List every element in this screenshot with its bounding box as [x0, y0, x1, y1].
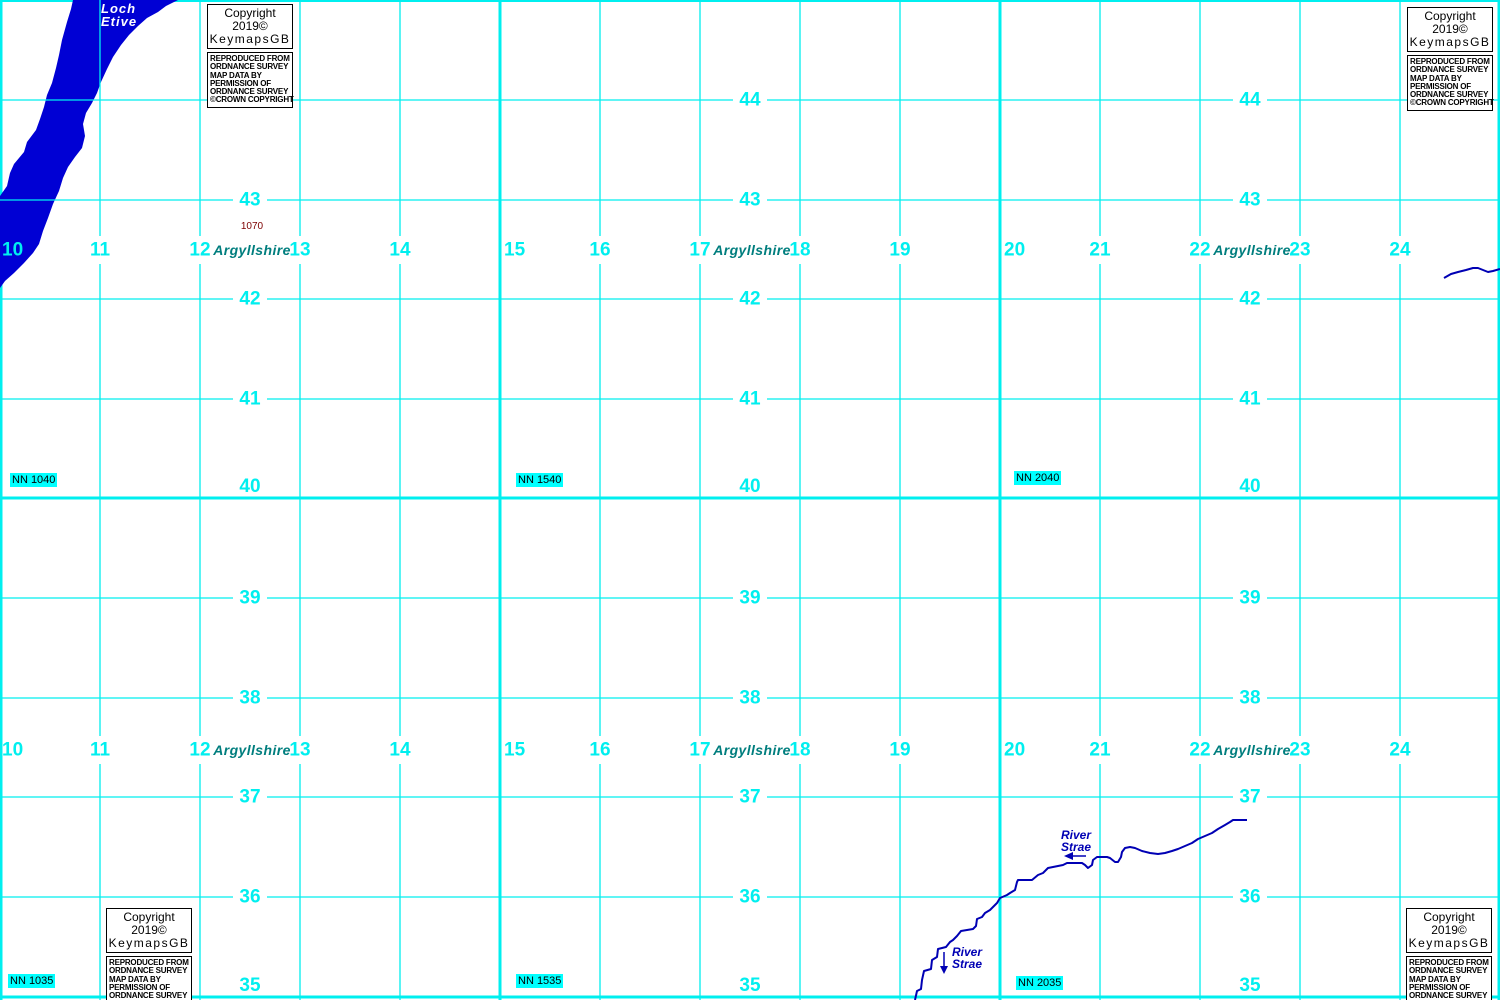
- grid-column-label-14: 14: [389, 741, 410, 760]
- nn-grid-ref: NN 1040: [10, 473, 57, 487]
- grid-row-label-36: 36: [739, 888, 760, 907]
- grid-row-label-40: 40: [739, 477, 760, 496]
- copyright-box: Copyright 2019© KeymapsGB REPRODUCED FRO…: [106, 908, 192, 1000]
- copyright-os-line: ©CROWN COPYRIGHT: [210, 96, 291, 104]
- river-name-label: RiverStrae: [952, 946, 982, 970]
- grid-column-label-13: 13: [289, 741, 310, 760]
- grid-column-label-10: 10: [2, 741, 23, 760]
- grid-column-label-17: 17: [689, 241, 710, 260]
- grid-row-label-44: 44: [739, 91, 760, 110]
- river-name-label: RiverStrae: [1061, 829, 1091, 853]
- grid-column-label-15: 15: [504, 241, 525, 260]
- grid-column-label-21: 21: [1089, 741, 1110, 760]
- grid-row-label-39: 39: [239, 589, 260, 608]
- grid-row-label-40: 40: [1239, 477, 1260, 496]
- grid-row-label-37: 37: [239, 788, 260, 807]
- river-name-line: Strae: [952, 958, 982, 970]
- grid-row-label-37: 37: [739, 788, 760, 807]
- nn-grid-ref: NN 2035: [1016, 976, 1063, 990]
- copyright-brand: KeymapsGB: [1408, 36, 1492, 49]
- county-label: Argyllshire: [713, 242, 791, 258]
- county-label: Argyllshire: [1213, 742, 1291, 758]
- map-canvas[interactable]: Loch Etive 1070 Copyright 2019© KeymapsG…: [0, 0, 1500, 1000]
- grid-column-label-22: 22: [1189, 241, 1210, 260]
- grid-column-label-14: 14: [389, 241, 410, 260]
- grid-column-label-18: 18: [789, 241, 810, 260]
- grid-row-label-43: 43: [239, 191, 260, 210]
- grid-row-label-39: 39: [1239, 589, 1260, 608]
- grid-row-label-42: 42: [1239, 290, 1260, 309]
- grid-row-label-38: 38: [739, 689, 760, 708]
- grid-column-label-23: 23: [1289, 741, 1310, 760]
- copyright-os-box: REPRODUCED FROM ORDNANCE SURVEY MAP DATA…: [1406, 956, 1492, 1000]
- copyright-brand: KeymapsGB: [208, 33, 292, 46]
- copyright-keymaps-box: Copyright 2019© KeymapsGB: [1407, 7, 1493, 52]
- county-label: Argyllshire: [213, 242, 291, 258]
- grid-column-label-15: 15: [504, 741, 525, 760]
- nn-grid-ref: NN 2040: [1014, 471, 1061, 485]
- county-label: Argyllshire: [1213, 242, 1291, 258]
- grid-row-label-35: 35: [1239, 976, 1260, 995]
- copyright-line: Copyright 2019©: [107, 911, 191, 937]
- nn-grid-ref: NN 1535: [516, 974, 563, 988]
- grid-column-label-12: 12: [189, 741, 210, 760]
- grid-column-label-22: 22: [1189, 741, 1210, 760]
- grid-row-label-42: 42: [239, 290, 260, 309]
- copyright-line: Copyright 2019©: [1407, 911, 1491, 937]
- grid-row-label-41: 41: [1239, 390, 1260, 409]
- grid-column-label-24: 24: [1389, 741, 1410, 760]
- copyright-box: Copyright 2019© KeymapsGB REPRODUCED FRO…: [1407, 7, 1493, 111]
- grid-column-label-23: 23: [1289, 241, 1310, 260]
- grid-column-label-11: 11: [90, 741, 110, 760]
- loch-name-label: Loch Etive: [101, 2, 137, 28]
- grid-column-label-24: 24: [1389, 241, 1410, 260]
- copyright-os-box: REPRODUCED FROM ORDNANCE SURVEY MAP DATA…: [1407, 55, 1493, 111]
- copyright-brand: KeymapsGB: [1407, 937, 1491, 950]
- grid-column-label-20: 20: [1004, 241, 1025, 260]
- grid-row-label-43: 43: [739, 191, 760, 210]
- grid-column-label-12: 12: [189, 241, 210, 260]
- copyright-box: Copyright 2019© KeymapsGB REPRODUCED FRO…: [1406, 908, 1492, 1000]
- grid-row-label-42: 42: [739, 290, 760, 309]
- copyright-line: Copyright 2019©: [208, 7, 292, 33]
- copyright-keymaps-box: Copyright 2019© KeymapsGB: [106, 908, 192, 953]
- grid-column-label-20: 20: [1004, 741, 1025, 760]
- grid-row-label-43: 43: [1239, 191, 1260, 210]
- grid-column-label-17: 17: [689, 741, 710, 760]
- grid-column-label-16: 16: [589, 241, 610, 260]
- spot-height-label: 1070: [241, 222, 263, 232]
- grid-row-label-38: 38: [1239, 689, 1260, 708]
- stream-line: [1444, 268, 1500, 278]
- grid-row-label-36: 36: [239, 888, 260, 907]
- grid-row-label-41: 41: [239, 390, 260, 409]
- nn-grid-ref: NN 1540: [516, 473, 563, 487]
- copyright-os-line: ©CROWN COPYRIGHT: [1410, 99, 1491, 107]
- grid-column-label-11: 11: [90, 241, 110, 260]
- county-label: Argyllshire: [713, 742, 791, 758]
- grid-column-label-19: 19: [889, 741, 910, 760]
- grid-row-label-35: 35: [739, 976, 760, 995]
- grid-row-label-35: 35: [239, 976, 260, 995]
- county-label: Argyllshire: [213, 742, 291, 758]
- grid-row-label-37: 37: [1239, 788, 1260, 807]
- copyright-brand: KeymapsGB: [107, 937, 191, 950]
- grid-row-label-44: 44: [1239, 91, 1260, 110]
- grid-column-label-16: 16: [589, 741, 610, 760]
- grid-row-label-36: 36: [1239, 888, 1260, 907]
- river-name-line: Strae: [1061, 841, 1091, 853]
- copyright-os-box: REPRODUCED FROM ORDNANCE SURVEY MAP DATA…: [207, 52, 293, 108]
- grid-row-label-38: 38: [239, 689, 260, 708]
- map-grid-layer: [0, 0, 1500, 1000]
- grid-column-label-19: 19: [889, 241, 910, 260]
- copyright-keymaps-box: Copyright 2019© KeymapsGB: [1406, 908, 1492, 953]
- grid-column-label-21: 21: [1089, 241, 1110, 260]
- grid-column-label-18: 18: [789, 741, 810, 760]
- nn-grid-ref: NN 1035: [8, 974, 55, 988]
- grid-row-label-39: 39: [739, 589, 760, 608]
- copyright-line: Copyright 2019©: [1408, 10, 1492, 36]
- copyright-os-box: REPRODUCED FROM ORDNANCE SURVEY MAP DATA…: [106, 956, 192, 1000]
- copyright-keymaps-box: Copyright 2019© KeymapsGB: [207, 4, 293, 49]
- flow-arrow-down-icon: [940, 966, 948, 974]
- grid-column-label-10: 10: [2, 241, 23, 260]
- copyright-box: Copyright 2019© KeymapsGB REPRODUCED FRO…: [207, 4, 293, 108]
- grid-column-label-13: 13: [289, 241, 310, 260]
- loch-name-line2: Etive: [101, 15, 137, 28]
- grid-row-label-40: 40: [239, 477, 260, 496]
- grid-row-label-41: 41: [739, 390, 760, 409]
